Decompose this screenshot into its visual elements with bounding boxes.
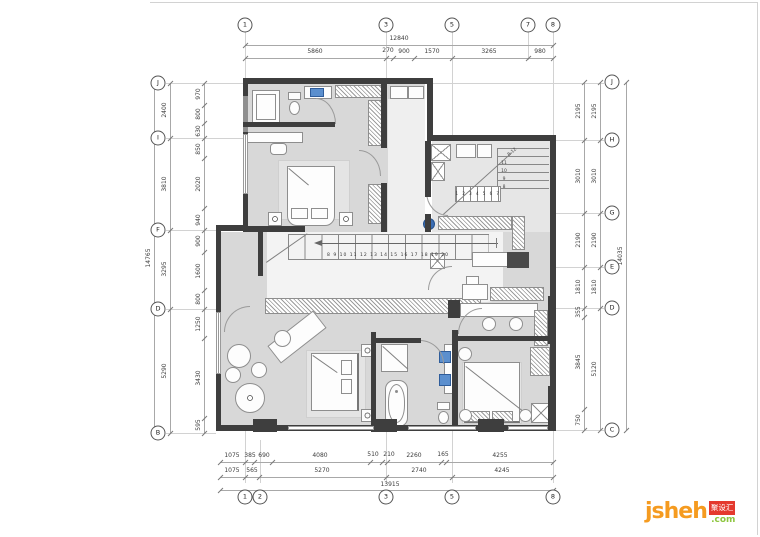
nightstand (268, 212, 282, 226)
arrow-end-tick (496, 238, 497, 248)
dimension-text: 2020 (196, 176, 202, 191)
axis-bubble-bottom-2: 2 (253, 490, 268, 505)
stair-number: 10 (501, 170, 507, 175)
column (253, 419, 277, 432)
axis-bubble-right-J: J (605, 75, 620, 90)
dimension-text: 13915 (380, 482, 399, 488)
pillow (341, 379, 352, 394)
axis-bubble-left-J: J (151, 76, 166, 91)
dimension-line (584, 82, 585, 430)
dimension-text: 3430 (196, 370, 202, 385)
dimension-text: 1075 (224, 453, 239, 459)
axis-bubble-right-H: H (605, 133, 620, 148)
axis-bubble-right-D: D (605, 301, 620, 316)
dimension-text: 14765 (146, 248, 152, 267)
dimension-line (626, 82, 627, 430)
axis-bubble-left-F: F (151, 223, 166, 238)
stair-number: 8 (503, 186, 506, 191)
side-table-round (251, 362, 267, 378)
stair-number: 11 (501, 162, 507, 167)
cabinet (477, 144, 492, 158)
pillow (291, 208, 308, 219)
drain (395, 390, 398, 393)
cabinet (456, 144, 476, 158)
dimension-text: 4255 (492, 453, 507, 459)
grid-line-C (556, 430, 604, 431)
toilet-bowl (289, 101, 300, 115)
dimension-text: 940 (196, 214, 202, 225)
dim-tick (624, 428, 630, 434)
logo[interactable]: jsheh 聚设汇 .com (645, 501, 735, 525)
sheet-border (757, 2, 758, 535)
axis-bubble-right-G: G (605, 206, 620, 221)
axis-bubble-bottom-1: 1 (238, 490, 253, 505)
grid-line-H (556, 140, 604, 141)
floor-upper-hall (388, 99, 425, 232)
wardrobe-hatch (512, 216, 525, 250)
dimension-text: 750 (576, 414, 582, 425)
wall-stub (448, 300, 460, 318)
axis-bubble-top-1: 1 (238, 18, 253, 33)
dimension-text: 1075 (224, 468, 239, 474)
toilet-bowl (438, 411, 449, 424)
axis-bubble-top-3: 3 (379, 18, 394, 33)
wardrobe-hatch (438, 216, 512, 230)
desk (247, 132, 303, 143)
cabinet (408, 86, 424, 99)
dimension-text: 980 (534, 49, 545, 55)
column (478, 419, 504, 432)
grid-line-E (556, 267, 604, 268)
stool-round (459, 409, 472, 422)
wall (243, 226, 305, 232)
dimension-text: 3845 (576, 354, 582, 369)
wall-block (507, 252, 529, 268)
pillow (341, 360, 352, 375)
dimension-text: 2195 (592, 103, 598, 118)
dimension-text: 2740 (411, 468, 426, 474)
axis-bubble-top-7: 7 (521, 18, 536, 33)
sheet-border (150, 2, 758, 3)
sink (310, 88, 324, 97)
wall (425, 214, 431, 232)
logo-cn-badge: 聚设汇 (709, 501, 736, 515)
window (216, 312, 221, 374)
sink (439, 374, 451, 386)
arrowhead (314, 240, 322, 246)
wardrobe-hatch (368, 100, 382, 146)
stair-number: 9 (503, 178, 506, 183)
dimension-text: 630 (196, 125, 202, 136)
dimension-text: 3265 (481, 49, 496, 55)
axis-bubble-left-B: B (151, 426, 166, 441)
axis-bubble-bottom-3: 3 (379, 490, 394, 505)
lounge-chair (235, 383, 265, 413)
wall (371, 332, 376, 431)
dimension-text: 900 (196, 235, 202, 246)
shaft-box (431, 162, 445, 181)
dimension-text: 4080 (312, 453, 327, 459)
grid-line-F (166, 230, 216, 231)
dimension-text: 970 (196, 88, 202, 99)
wall (427, 135, 556, 141)
dimension-text: 2400 (162, 102, 168, 117)
column (371, 419, 397, 432)
toilet-tank (288, 92, 301, 100)
dimension-text: 1250 (196, 316, 202, 331)
wall (381, 84, 387, 148)
chair (482, 317, 496, 331)
dimension-line (245, 45, 553, 46)
wardrobe-hatch (530, 347, 550, 376)
side-table (462, 284, 488, 300)
dimension-text: 5290 (162, 363, 168, 378)
shaft-box (431, 144, 451, 161)
wall (258, 232, 263, 276)
wardrobe-hatch (335, 85, 383, 98)
dimension-text: 1810 (576, 279, 582, 294)
dimension-text: 12840 (389, 36, 408, 42)
shelf-hatch (490, 287, 544, 301)
dimension-text: 2195 (576, 103, 582, 118)
dimension-text: 5270 (314, 468, 329, 474)
axis-bubble-right-E: E (605, 260, 620, 275)
axis-bubble-left-D: D (151, 302, 166, 317)
dimension-text: 4245 (494, 468, 509, 474)
dimension-text: 2190 (592, 232, 598, 247)
window (408, 426, 476, 430)
wall (243, 122, 335, 127)
axis-bubble-bottom-8: 8 (546, 490, 561, 505)
logo-tld: .com (709, 515, 736, 525)
dimension-text: 2260 (406, 453, 421, 459)
dimension-text: 800 (196, 293, 202, 304)
dimension-text: 510 (367, 452, 378, 458)
stair-numbers-row: 8 9 10 11 12 13 14 15 16 17 18 19 20 (327, 254, 449, 259)
dimension-text: 355 (576, 306, 582, 317)
dimension-text: 800 (196, 108, 202, 119)
dimension-text: 900 (398, 49, 409, 55)
grid-line-D (166, 309, 216, 310)
window (243, 134, 248, 194)
dimension-text: 850 (196, 143, 202, 154)
axis-bubble-top-8: 8 (546, 18, 561, 33)
axis-bubble-right-C: C (605, 423, 620, 438)
axis-bubble-top-5: 5 (445, 18, 460, 33)
dimension-text: 270 (382, 48, 393, 54)
dimension-line (600, 82, 601, 430)
wall (427, 84, 433, 135)
lounge-chair (225, 367, 241, 383)
dimension-text: 1600 (196, 263, 202, 278)
axis-bubble-bottom-5: 5 (445, 490, 460, 505)
window (288, 426, 374, 430)
dimension-text: 1810 (592, 279, 598, 294)
logo-wordmark: jsheh (645, 501, 707, 523)
dimension-text: 595 (196, 419, 202, 430)
stool (270, 143, 287, 155)
shower-tray (256, 94, 276, 120)
dimension-text: 3810 (162, 176, 168, 191)
dimension-text: 2190 (576, 232, 582, 247)
stair-direction-arrow (322, 243, 498, 244)
dimension-line (245, 58, 553, 59)
dimension-text: 14035 (618, 246, 624, 265)
dimension-text: 1570 (424, 49, 439, 55)
dimension-text: 385 (244, 453, 255, 459)
lounge-chair (227, 344, 251, 368)
dimension-text: 3010 (592, 168, 598, 183)
nightstand (339, 212, 353, 226)
dimension-text: 165 (437, 452, 448, 458)
wall (452, 336, 552, 341)
dimension-text: 210 (383, 452, 394, 458)
axis-bubble-left-I: I (151, 131, 166, 146)
wardrobe-hatch (368, 184, 382, 224)
wall (243, 78, 433, 84)
wall (371, 338, 421, 343)
pillow (311, 208, 328, 219)
wall (381, 183, 387, 232)
dimension-text: 3010 (576, 168, 582, 183)
column (548, 296, 556, 344)
dimension-text: 5120 (592, 361, 598, 376)
dimension-text: 565 (246, 468, 257, 474)
dimension-text: 690 (258, 453, 269, 459)
cabinet (472, 252, 508, 267)
cabinet (390, 86, 408, 99)
stool-round (458, 347, 472, 361)
toilet-tank (437, 402, 450, 410)
grid-line-G (556, 213, 604, 214)
floor-plan-sheet: 12840 5860 270 900 1570 3265 980 1075 38… (0, 0, 760, 537)
grid-line-B (166, 433, 216, 434)
window (508, 426, 548, 430)
wall (452, 330, 458, 431)
column (548, 386, 556, 431)
wall (425, 141, 431, 197)
stair-numbers-row: 1 2 3 4 5 6 7 (456, 192, 501, 196)
desk-chair (274, 330, 291, 347)
chair (509, 317, 523, 331)
dimension-text: 5860 (307, 49, 322, 55)
dimension-text: 3295 (162, 261, 168, 276)
